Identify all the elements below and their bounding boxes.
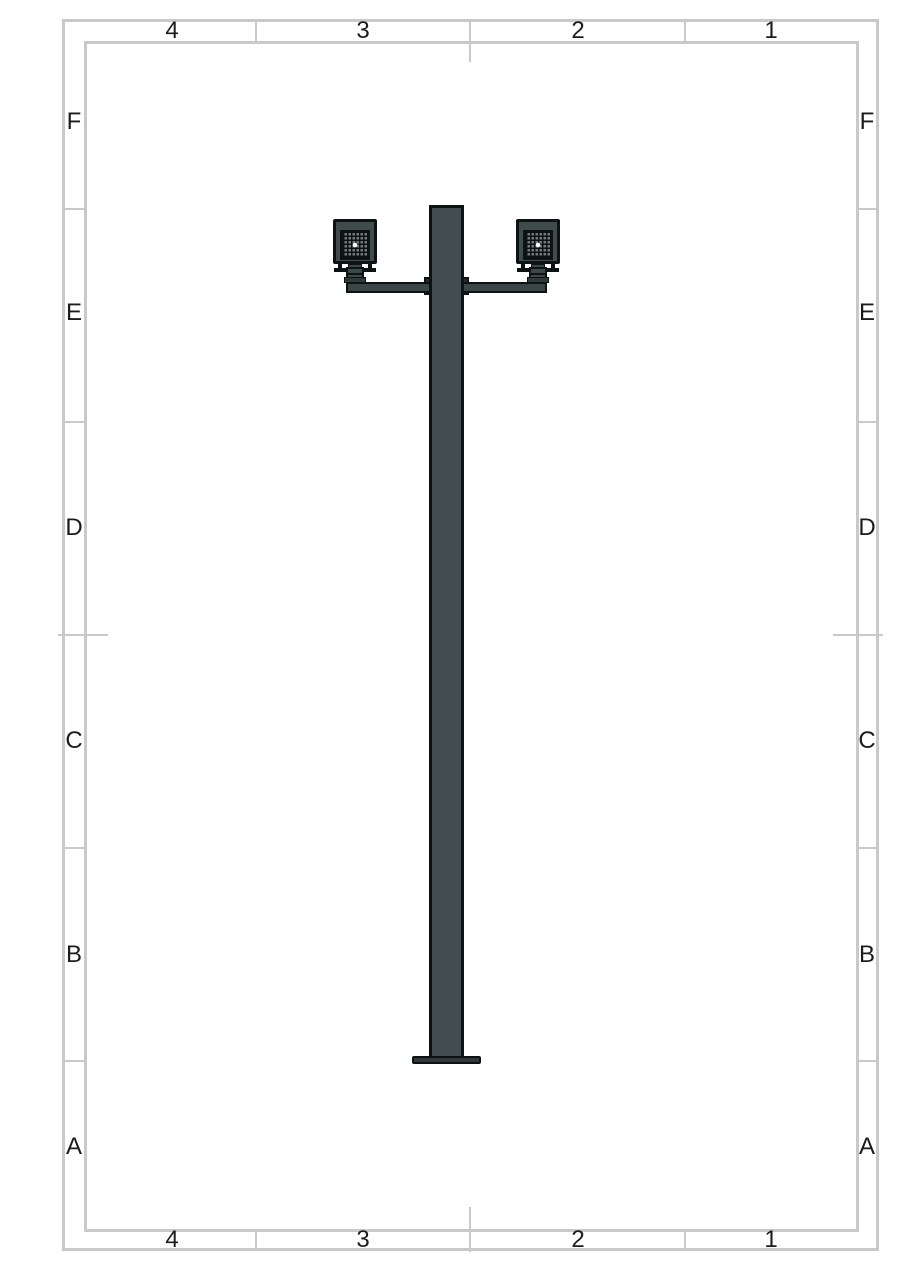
zone-divider-right-B-A — [857, 1060, 876, 1062]
knuckle-base — [527, 277, 549, 283]
zone-divider-right-E-D — [857, 421, 876, 423]
zone-label-left-B: B — [66, 943, 82, 967]
zone-divider-bottom-4-3 — [255, 1229, 257, 1249]
zone-label-bottom-1: 1 — [764, 1228, 777, 1252]
drawing-sheet-page: { "zones": { "columns": ["4", "3", "2", … — [0, 0, 900, 1273]
pole-base-plate — [412, 1056, 481, 1064]
led-array-icon — [523, 230, 553, 260]
zone-label-bottom-2: 2 — [571, 1228, 584, 1252]
zone-divider-left-B-A — [65, 1060, 84, 1062]
knuckle-band — [531, 273, 545, 275]
zone-label-right-D: D — [858, 516, 875, 540]
zone-label-left-A: A — [66, 1135, 82, 1159]
zone-label-left-E: E — [66, 301, 82, 325]
zone-label-right-B: B — [859, 943, 875, 967]
zone-divider-left-C-B — [65, 847, 84, 849]
center-mark-bottom — [469, 1207, 471, 1252]
led-array-icon — [340, 230, 370, 260]
zone-label-left-F: F — [67, 110, 82, 134]
zone-label-top-1: 1 — [764, 19, 777, 43]
zone-label-left-D: D — [65, 516, 82, 540]
zone-label-right-E: E — [859, 301, 875, 325]
floodlight-right — [516, 219, 560, 283]
led-grid — [526, 233, 550, 257]
zone-label-right-F: F — [860, 110, 875, 134]
zone-label-right-A: A — [859, 1135, 875, 1159]
zone-label-top-3: 3 — [356, 19, 369, 43]
floodlight-left — [333, 219, 377, 283]
center-mark-left — [58, 634, 108, 636]
zone-label-top-2: 2 — [571, 19, 584, 43]
center-mark-top — [469, 19, 471, 62]
led-grid — [343, 233, 367, 257]
pole-shaft — [429, 205, 464, 1058]
zone-label-bottom-3: 3 — [356, 1228, 369, 1252]
zone-divider-left-E-D — [65, 421, 84, 423]
zone-divider-top-2-1 — [684, 22, 686, 41]
zone-label-top-4: 4 — [165, 19, 178, 43]
zone-divider-top-4-3 — [255, 22, 257, 41]
zone-divider-left-F-E — [65, 208, 84, 210]
zone-divider-right-F-E — [857, 208, 876, 210]
zone-label-left-C: C — [65, 729, 82, 753]
center-mark-right — [833, 634, 883, 636]
zone-label-right-C: C — [858, 729, 875, 753]
knuckle-base — [344, 277, 366, 283]
zone-label-bottom-4: 4 — [165, 1228, 178, 1252]
zone-divider-bottom-2-1 — [684, 1229, 686, 1249]
knuckle-band — [348, 273, 362, 275]
zone-divider-right-C-B — [857, 847, 876, 849]
floodlight-housing — [516, 219, 560, 264]
sheet-inner-border — [84, 41, 859, 1232]
floodlight-housing — [333, 219, 377, 264]
